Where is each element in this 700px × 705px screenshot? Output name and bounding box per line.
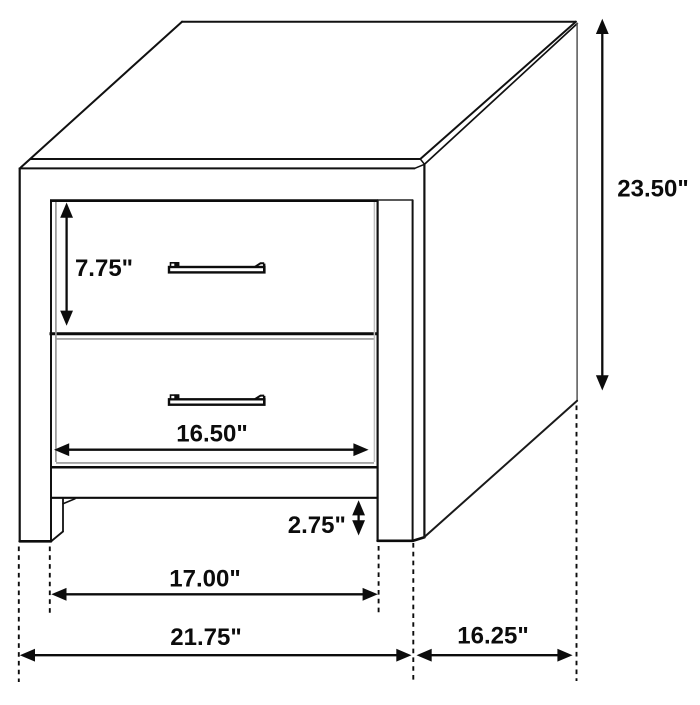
svg-text:16.25": 16.25" (457, 623, 528, 650)
svg-text:2.75": 2.75" (288, 512, 346, 539)
svg-text:17.00": 17.00" (169, 566, 240, 593)
svg-text:7.75": 7.75" (75, 255, 133, 282)
svg-text:16.50": 16.50" (176, 421, 247, 448)
svg-text:21.75": 21.75" (170, 624, 241, 651)
svg-text:23.50": 23.50" (617, 176, 688, 203)
